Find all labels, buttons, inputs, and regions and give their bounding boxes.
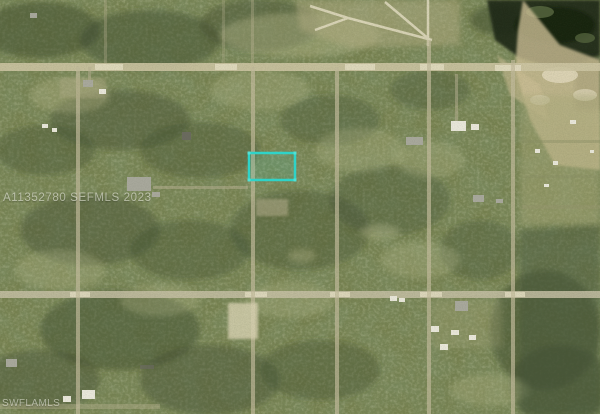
subject-parcel-outline <box>248 152 297 182</box>
satellite-image <box>0 0 600 414</box>
aerial-map-image: A11352780 SEFMLS 2023 SWFLAMLS <box>0 0 600 414</box>
grain-overlay <box>0 0 600 414</box>
